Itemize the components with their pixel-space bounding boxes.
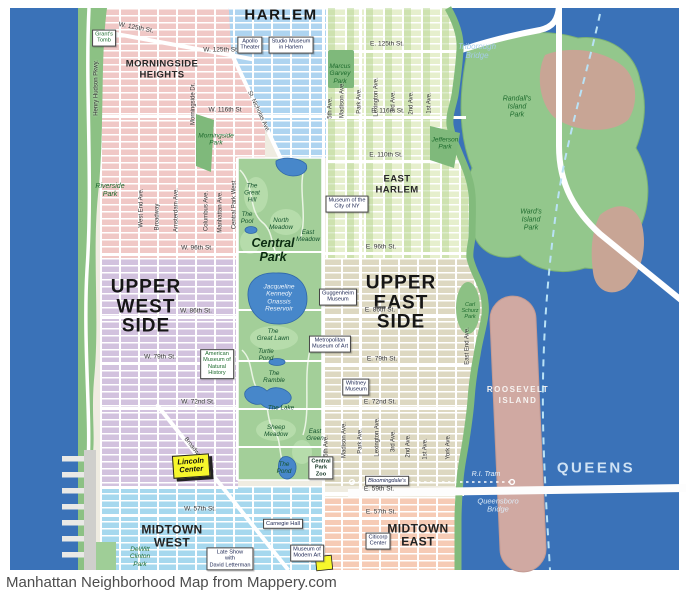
street-e116: E. 116th St. [371,107,404,114]
cp-the-ramble: The Ramble [263,370,285,384]
landmark-central-park-zoo: Central Park Zoo [308,456,333,479]
landmark-studio-museum: Studio Museum in Harlem [269,37,314,54]
label-central-park: Central Park [251,236,294,264]
cp-east-meadow: East Meadow [296,229,320,243]
avenue-5th-south: 5th Ave. [324,435,331,457]
landmark-bloomingdales: Bloomingdale's [365,476,409,486]
landmark-met: Metropolitan Museum of Art [309,336,351,353]
avenue-park-south: Park Ave. [358,428,365,454]
label-morningside-park: Morningside Park [198,133,233,148]
cp-the-pool: The Pool [241,211,254,225]
label-queens: QUEENS [557,461,635,478]
label-roosevelt-island: ROOSEVELT ISLAND [487,385,549,407]
avenue-5th-north: 5th Ave. [328,97,335,119]
avenue-park-north: Park Ave. [357,88,364,114]
cp-the-lake: The Lake [268,404,294,411]
street-e59: E. 59th St. [364,485,394,492]
label-carl-schurz-park: Carl Schurz Park [461,302,478,320]
label-midtown-west: MIDTOWN WEST [141,524,202,551]
label-harlem: HARLEM [244,8,317,25]
avenue-2nd-north: 2nd Ave. [409,91,416,114]
label-wards-island-park: Ward's Island Park [520,208,541,231]
avenue-madison-south: Madison Ave. [342,422,349,458]
label-upper-west-side: UPPER WEST SIDE [111,278,181,337]
avenue-st-nicholas: St. Nicholas Ave. [245,90,270,134]
street-e125: E. 125th St. [370,40,404,47]
avenue-2nd-south: 2nd Ave. [406,434,413,457]
street-e110: E. 110th St. [369,151,402,158]
avenue-broadway-upper: Broadway [155,204,162,231]
label-randalls-island-park: Randall's Island Park [503,95,532,118]
landmark-moma: Museum of Modern Art [290,545,324,562]
avenue-central-park-west: Central Park West [232,181,239,230]
label-morningside-heights: MORNINGSIDE HEIGHTS [126,59,199,80]
cp-east-green: East Green [306,428,324,442]
landmark-lincoln-center: Lincoln Center [172,453,210,478]
street-e79: E. 79th St. [367,355,397,362]
street-w125-diagonal: W. 125th St. [118,21,154,35]
street-w79: W. 79th St. [144,353,176,360]
label-ri-tram: R.I. Tram [472,471,501,479]
landmark-citicorp: Citicorp Center [366,533,391,550]
avenue-1st-north: 1st Ave. [427,92,434,113]
street-e96: E. 96th St. [366,243,396,250]
avenue-amsterdam: Amsterdam Ave. [174,188,181,232]
street-e57: E. 57th St. [366,508,396,515]
label-upper-east-side: UPPER EAST SIDE [366,274,436,333]
street-w86: W. 86th St. [180,307,212,314]
map-labels-layer: HARLEMMORNINGSIDE HEIGHTSEAST HARLEMUPPE… [0,0,686,603]
label-riverside-park: Riverside Park [95,183,124,199]
cp-the-pond: The Pond [277,461,292,475]
street-e72: E. 72nd St. [364,398,396,405]
avenue-east-end: East End Ave. [465,327,472,365]
label-queensboro-bridge: Queensboro Bridge [477,498,518,515]
landmark-amnh: American Museum of Natural History [200,349,234,379]
landmark-apollo-theater: Apollo Theater [237,37,262,54]
avenue-3rd-north: 3rd Ave. [391,91,398,113]
label-dewitt-clinton-park: DeWitt Clinton Park [130,546,150,568]
street-w72: W. 72nd St. [181,398,215,405]
avenue-columbus: Columbus Ave. [204,191,211,231]
avenue-3rd-south: 3rd Ave. [391,430,398,452]
avenue-west-end: West End Ave. [139,188,146,227]
street-w96: W. 96th St. [181,244,213,251]
cp-sheep-meadow: Sheep Meadow [264,424,288,438]
avenue-broadway-lower: Broadway [182,436,204,461]
landmark-whitney: Whitney Museum [342,379,369,396]
label-triborough-bridge: Triborough Bridge [458,43,496,61]
cp-great-lawn: The Great Lawn [257,328,290,342]
label-midtown-east: MIDTOWN EAST [387,523,448,550]
label-marcus-garvey-park: Marcus Garvey Park [329,63,350,85]
map-screenshot: HARLEMMORNINGSIDE HEIGHTSEAST HARLEMUPPE… [0,0,686,603]
caption: Manhattan Neighborhood Map from Mappery.… [6,574,337,591]
avenue-1st-south: 1st Ave. [423,438,430,459]
street-e86: E. 86th St. [365,306,395,313]
landmark-grants-tomb: Grant's Tomb [92,30,116,47]
avenue-henry-hudson-pkwy: Henry Hudson Pkwy. [94,60,101,116]
street-w125: W. 125th St. [203,46,238,53]
label-east-harlem: EAST HARLEM [375,174,418,195]
avenue-manhattan: Manhattan Ave. [218,191,225,233]
label-jefferson-park: Jefferson Park [432,137,459,152]
street-w57: W. 57th St. [184,505,216,512]
cp-north-meadow: North Meadow [269,217,293,231]
avenue-lexington-north: Lexington Ave. [374,77,381,116]
landmark-carnegie-hall: Carnegie Hall [263,519,303,529]
landmark-guggenheim: Guggenheim Museum [319,289,357,306]
avenue-lexington-south: Lexington Ave. [375,417,382,456]
cp-reservoir: Jacqueline Kennedy Onassis Reservoir [263,283,294,312]
cp-turtle-pond: Turtle Pond [258,348,274,362]
avenue-york: York Ave. [446,434,453,459]
street-w116: W. 116th St [208,106,241,113]
cp-great-hill: The Great Hill [244,182,260,203]
landmark-late-show: Late Show with David Letterman [206,547,253,570]
avenue-morningside-dr: Morningside Dr. [191,83,198,125]
landmark-museum-city-ny: Museum of the City of NY [326,196,369,213]
avenue-madison-north: Madison Ave. [340,82,347,118]
